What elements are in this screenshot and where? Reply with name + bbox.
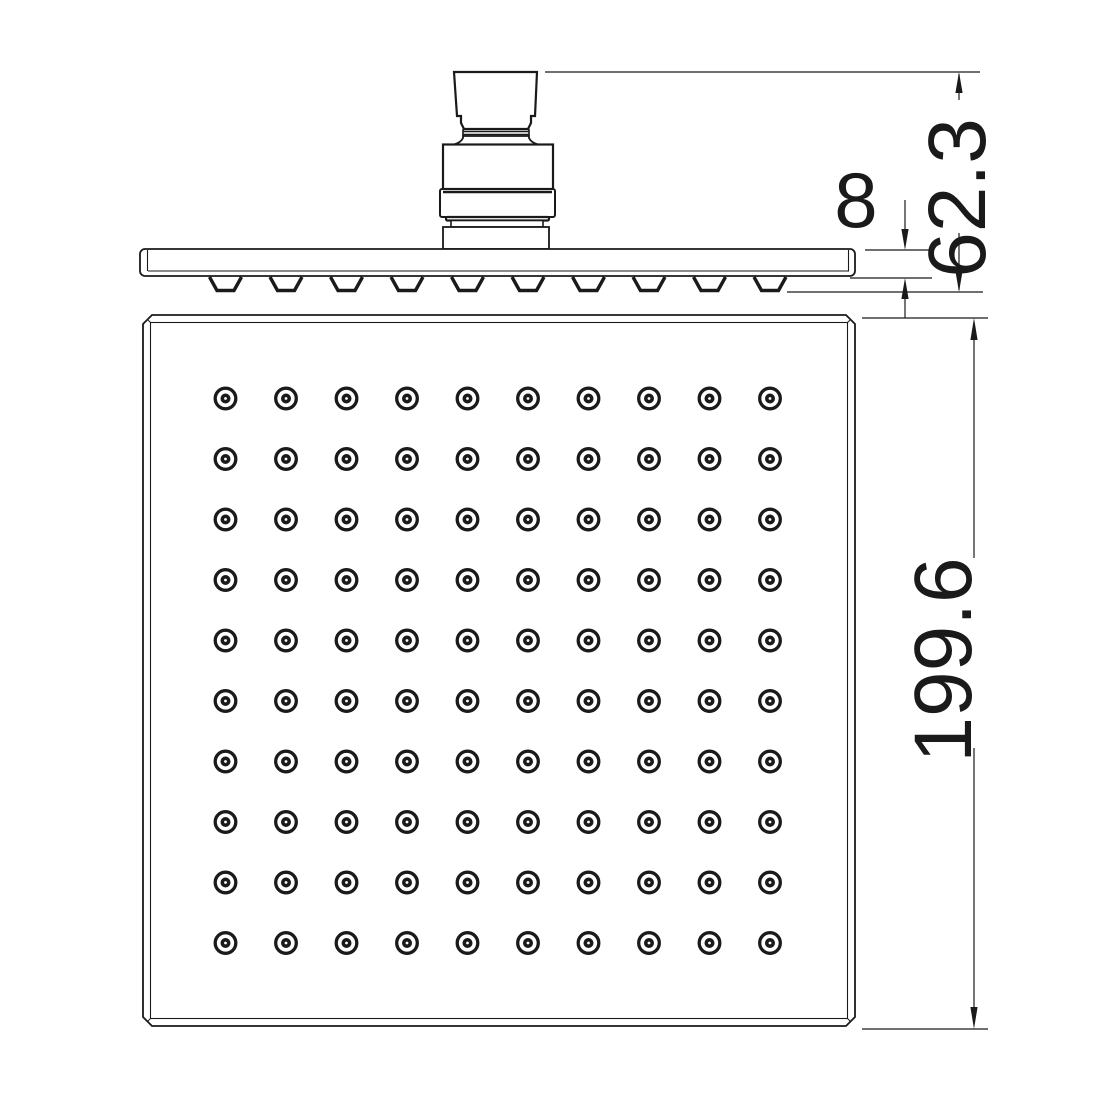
- side-nozzle-row: [210, 277, 787, 291]
- shower-head-drawing: 62.3 8 199.6: [0, 0, 1100, 1100]
- side-nozzle: [573, 277, 605, 291]
- plate-outline: [140, 249, 855, 276]
- dimension-label-199-6: 199.6: [898, 557, 989, 762]
- side-nozzle: [754, 277, 786, 291]
- side-view-plate: [140, 249, 855, 276]
- dimension-199: 199.6: [862, 318, 989, 1029]
- inlet-cap: [454, 72, 537, 129]
- technical-drawing-canvas: 62.3 8 199.6: [0, 0, 1100, 1100]
- arrowhead-down-face: [970, 1007, 977, 1029]
- front-view-face: [143, 315, 855, 1026]
- base-block: [443, 227, 549, 249]
- arrowhead-up-small: [901, 278, 908, 299]
- neck-flare: [454, 136, 538, 145]
- dimension-label-62-3: 62.3: [912, 118, 1003, 278]
- dimension-label-8: 8: [834, 156, 877, 244]
- arrowhead-up-face: [970, 318, 977, 340]
- arrowhead-up: [955, 72, 962, 93]
- side-nozzle: [633, 277, 665, 291]
- side-view-connector: [440, 72, 555, 249]
- lock-collar: [451, 221, 543, 228]
- face-outer-border: [143, 315, 855, 1026]
- side-nozzle: [270, 277, 302, 291]
- side-nozzle: [694, 277, 726, 291]
- side-nozzle: [391, 277, 423, 291]
- side-nozzle: [452, 277, 484, 291]
- side-nozzle: [512, 277, 544, 291]
- side-nozzle: [210, 277, 242, 291]
- side-nozzle: [331, 277, 363, 291]
- swivel-housing: [443, 145, 553, 190]
- arrowhead-down-small: [901, 229, 908, 250]
